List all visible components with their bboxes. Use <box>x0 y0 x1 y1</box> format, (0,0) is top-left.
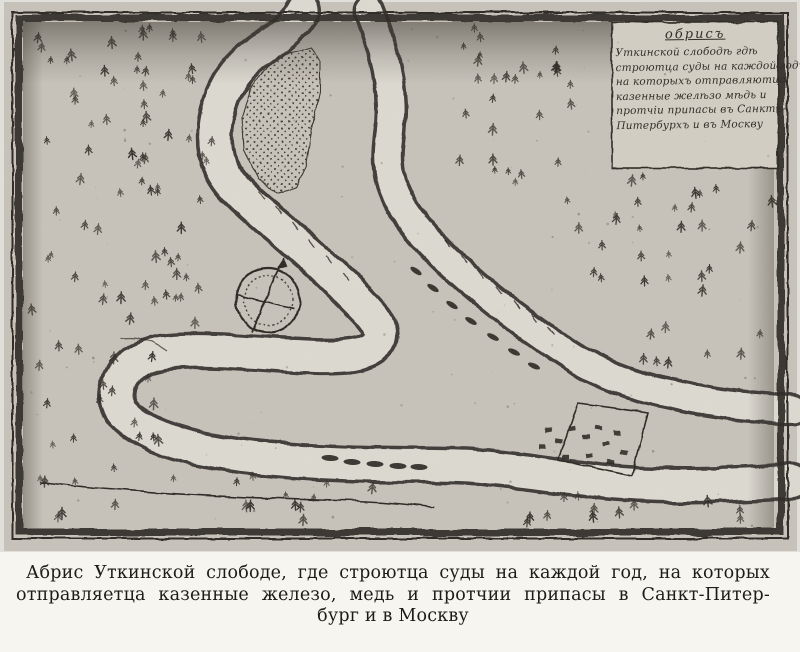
figure-caption: Абрис Уткинской слободе, где строютца су… <box>16 563 770 628</box>
caption-line: отправляетца казенные железо, медь и про… <box>16 585 770 607</box>
caption-line: бург и в Москву <box>16 606 770 628</box>
map-photo: обрисъ Уткинской слободѣ гдѣ строютца су… <box>0 0 800 552</box>
map-illustration <box>0 0 800 552</box>
caption-line: Абрис Уткинской слободе, где строютца су… <box>16 563 770 585</box>
paper-grain <box>4 2 797 551</box>
